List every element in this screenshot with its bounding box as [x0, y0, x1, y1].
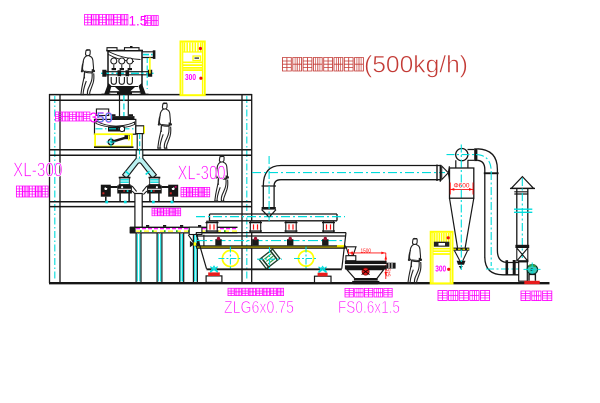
svg-text:ZLG6x0.75: ZLG6x0.75 — [224, 297, 294, 317]
svg-text:(500kg/h): (500kg/h) — [364, 52, 468, 79]
svg-text:XL-300: XL-300 — [13, 159, 63, 182]
svg-text:FS0.6x1.5: FS0.6x1.5 — [338, 297, 400, 317]
svg-text:545: 545 — [387, 269, 393, 277]
svg-text:XL-300: XL-300 — [178, 162, 226, 185]
svg-text:300: 300 — [435, 263, 446, 273]
svg-text:300: 300 — [185, 72, 196, 82]
svg-text:50: 50 — [97, 111, 113, 127]
svg-text:1500: 1500 — [361, 248, 372, 254]
